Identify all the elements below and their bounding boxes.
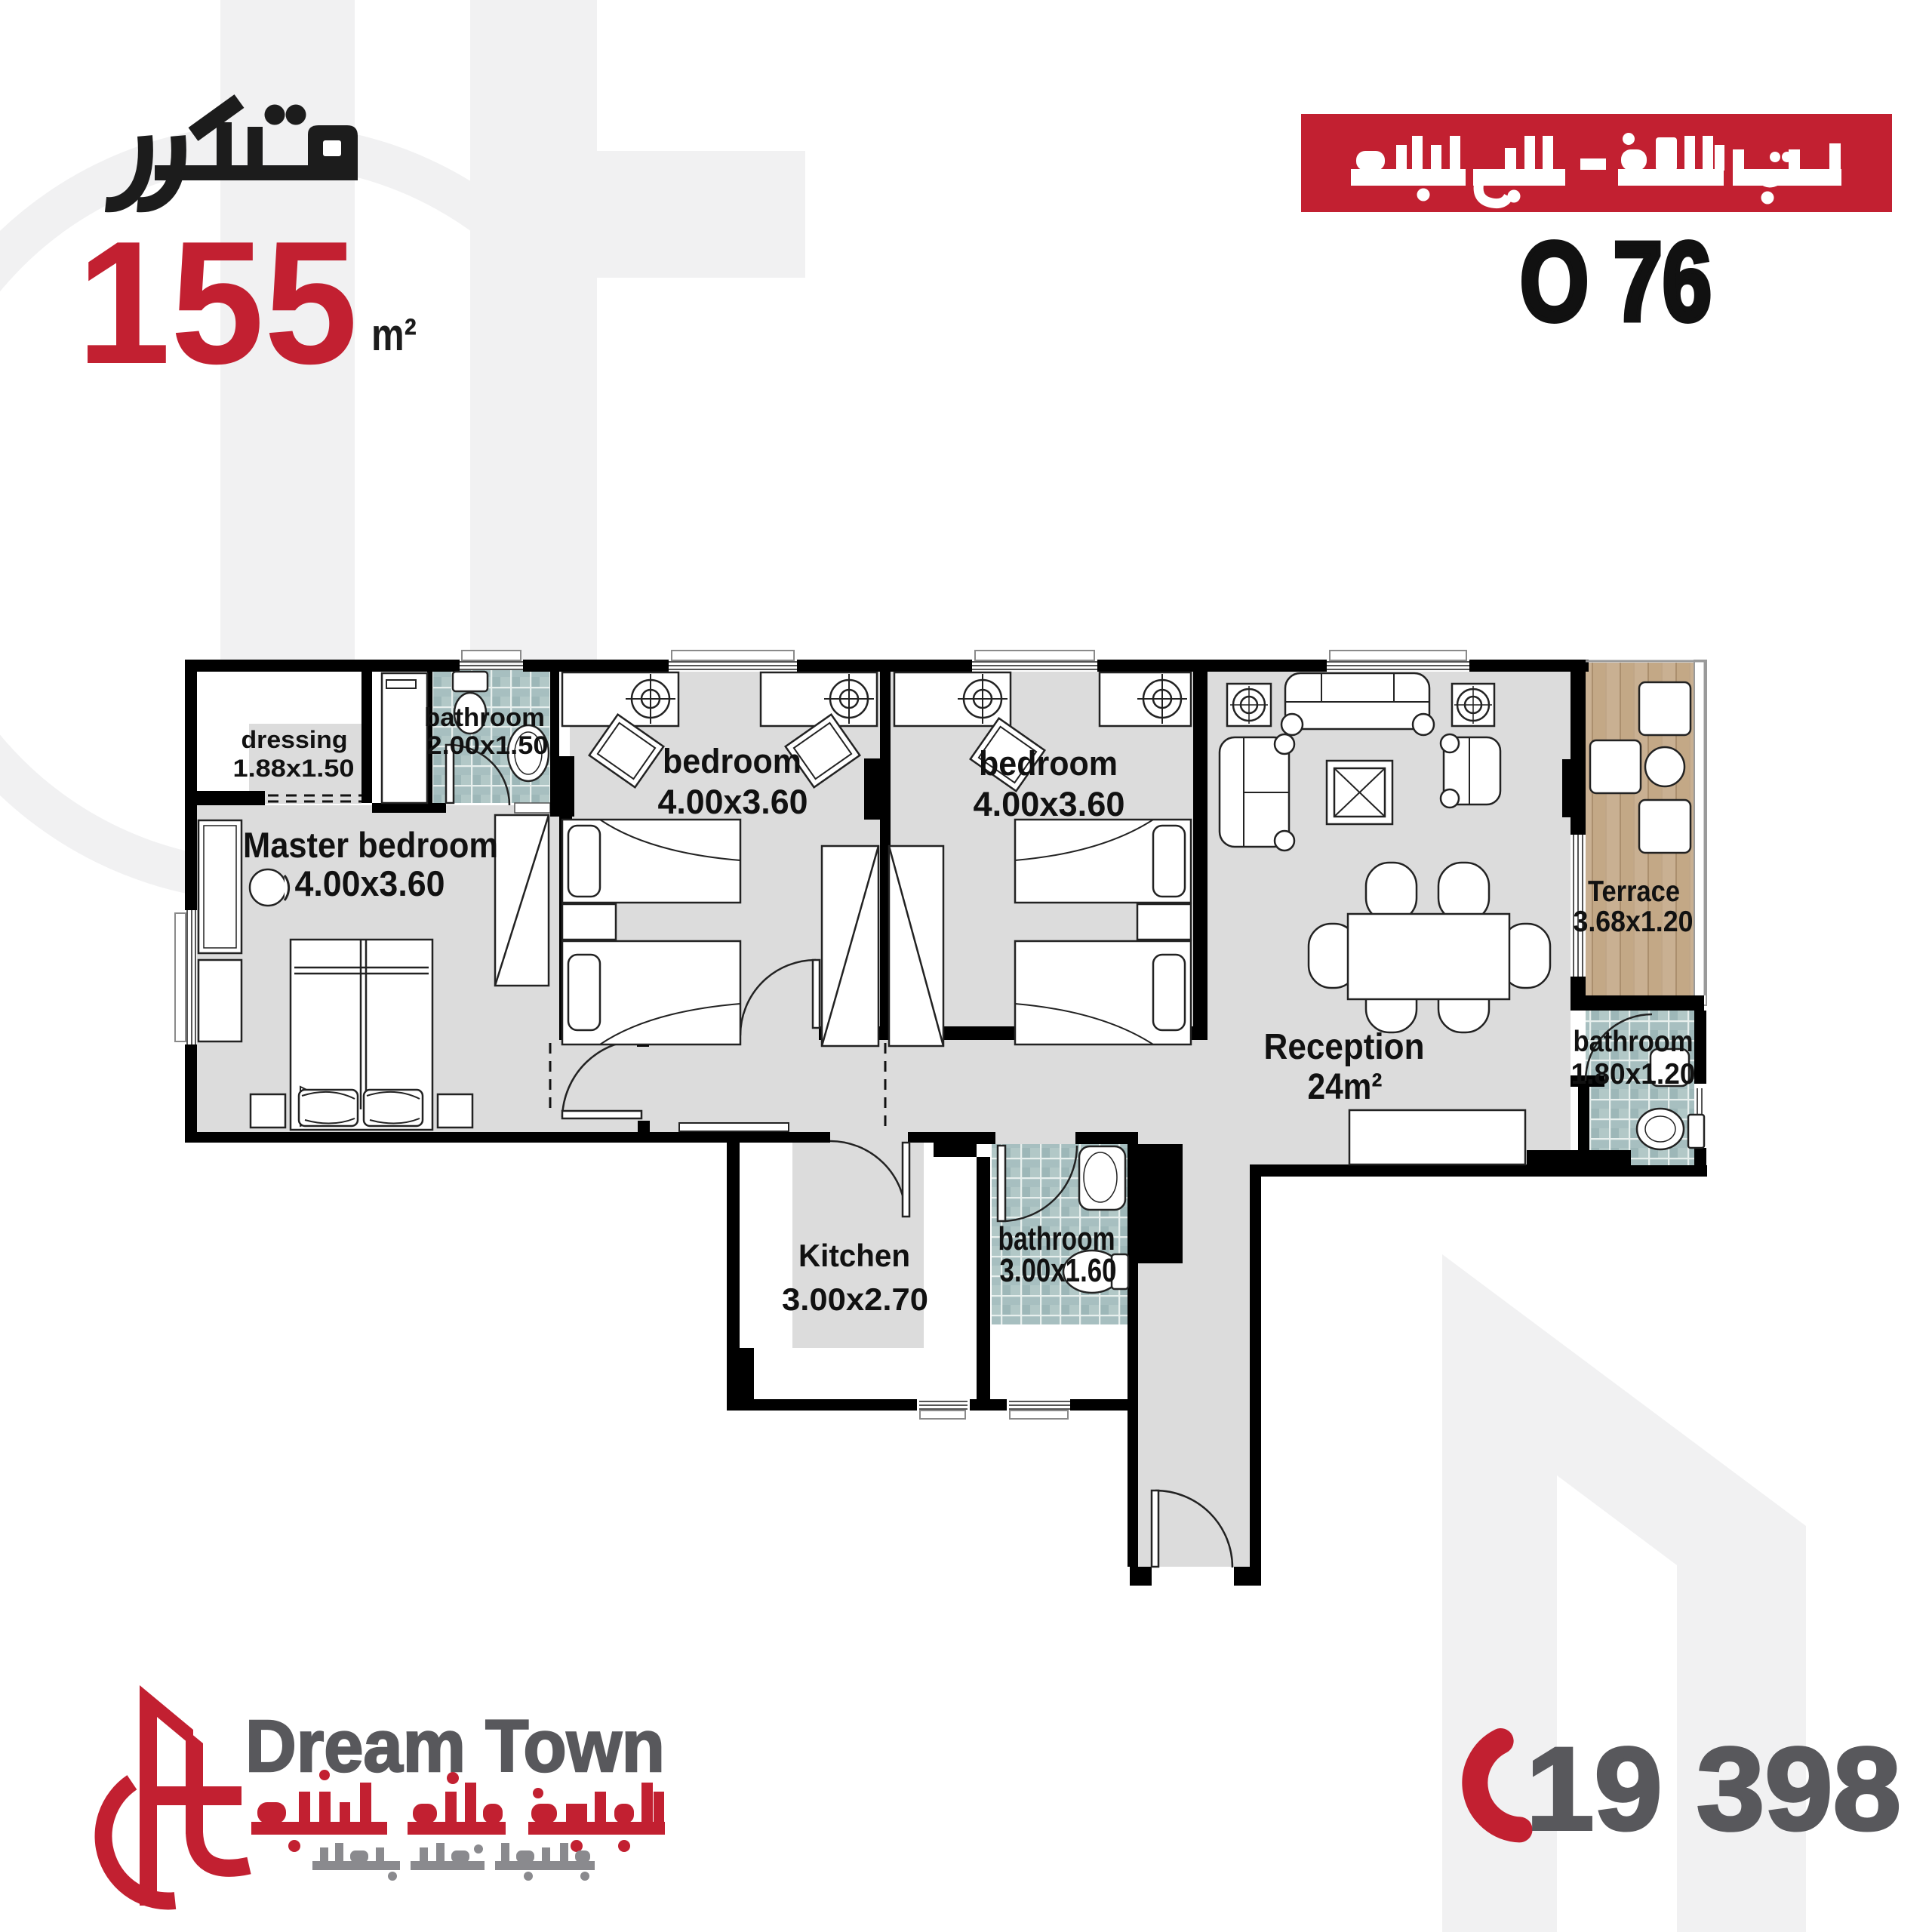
svg-text:1.80x1.20: 1.80x1.20: [1571, 1058, 1696, 1091]
svg-text:4.00x3.60: 4.00x3.60: [658, 783, 808, 821]
svg-text:1.88x1.50: 1.88x1.50: [233, 755, 355, 782]
svg-text:Master bedroom: Master bedroom: [243, 825, 498, 865]
svg-text:bathroom: bathroom: [424, 703, 545, 732]
svg-text:2.00x1.50: 2.00x1.50: [427, 731, 549, 760]
svg-text:3.00x2.70: 3.00x2.70: [782, 1281, 928, 1317]
svg-text:4.00x3.60: 4.00x3.60: [974, 785, 1125, 823]
svg-text:O 76: O 76: [1520, 220, 1712, 344]
svg-text:3.00x1.60: 3.00x1.60: [1000, 1252, 1117, 1289]
svg-text:24m²: 24m²: [1308, 1067, 1383, 1107]
svg-text:m²: m²: [371, 309, 417, 360]
svg-text:dressing: dressing: [241, 726, 348, 753]
svg-text:155: 155: [77, 205, 358, 401]
svg-text:bedroom: bedroom: [979, 744, 1118, 783]
svg-text:Terrace: Terrace: [1588, 875, 1680, 908]
svg-text:Kitchen: Kitchen: [798, 1238, 910, 1273]
svg-text:19 398: 19 398: [1526, 1724, 1901, 1855]
svg-text:bedroom: bedroom: [663, 742, 801, 780]
svg-text:Reception: Reception: [1264, 1027, 1425, 1067]
svg-text:4.00x3.60: 4.00x3.60: [295, 863, 445, 903]
svg-text:bathroom: bathroom: [1574, 1026, 1694, 1058]
svg-text:3.68x1.20: 3.68x1.20: [1574, 906, 1694, 938]
